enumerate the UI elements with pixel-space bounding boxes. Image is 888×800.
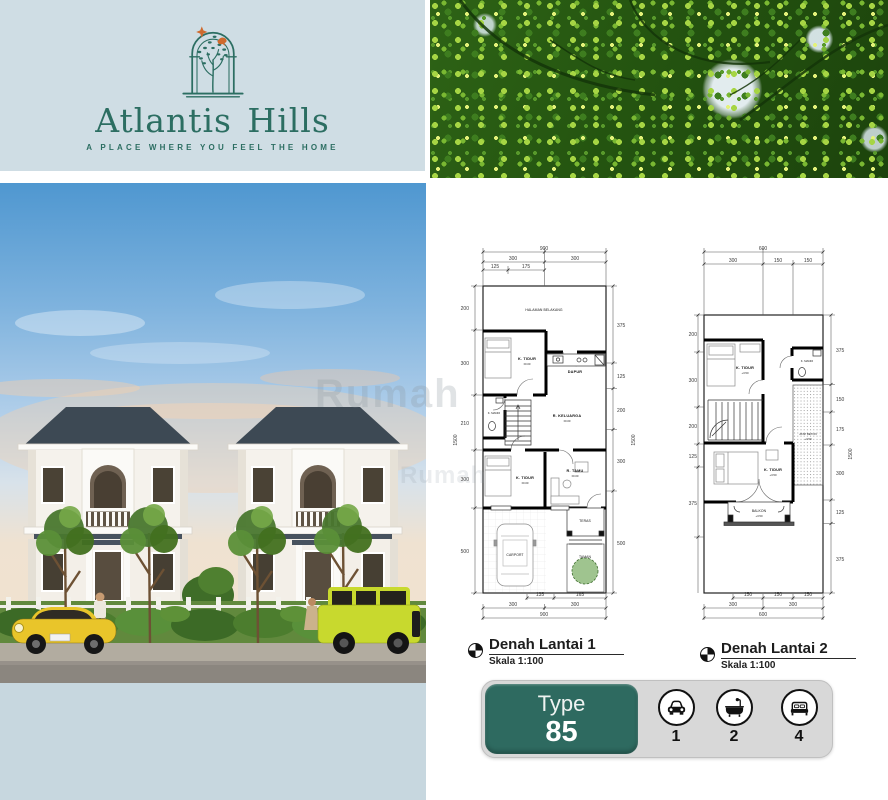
svg-text:200: 200 [617,408,626,414]
svg-text:300: 300 [571,602,580,608]
svg-text:1500: 1500 [453,434,459,445]
svg-text:+3.50: +3.50 [741,371,749,375]
svg-text:K. MANDI: K. MANDI [801,359,814,363]
svg-text:±0.00: ±0.00 [572,474,579,478]
floorplan-lantai-2: K. TIDUR +3.50 K. MANDI ATAP BETON +3.50… [688,240,888,660]
svg-text:300: 300 [789,602,798,608]
svg-text:600: 600 [759,612,768,618]
svg-text:300: 300 [571,256,580,262]
svg-text:K. TIDUR: K. TIDUR [764,468,782,472]
type-value: 85 [485,717,638,749]
svg-text:1500: 1500 [631,434,637,445]
svg-text:300: 300 [509,602,518,608]
svg-text:300: 300 [509,256,518,262]
svg-text:175: 175 [522,264,531,270]
svg-text:300: 300 [836,471,845,477]
bottom-color-strip [0,683,426,800]
compass-icon [468,643,483,658]
bathroom-count: 2 [709,728,759,746]
svg-text:300: 300 [461,361,470,367]
svg-text:K. TIDUR: K. TIDUR [516,476,534,480]
svg-text:375: 375 [836,348,845,354]
svg-text:±0.00: ±0.00 [564,419,571,423]
svg-text:300: 300 [689,378,698,384]
svg-text:300: 300 [729,258,738,264]
svg-text:150: 150 [836,397,845,403]
svg-text:ATAP BETON: ATAP BETON [799,432,816,436]
svg-text:375: 375 [617,323,626,329]
carport-count: 1 [651,728,701,746]
compass-icon [700,647,715,662]
svg-text:150: 150 [744,592,753,598]
bathtub-icon [716,689,753,726]
svg-text:TERAS: TERAS [579,519,591,523]
plan-title-lantai-2: Denah Lantai 2 Skala 1:100 [700,640,856,671]
svg-text:200: 200 [689,332,698,338]
arch-window-logo-icon [173,10,253,102]
type-tile: Type 85 [485,684,638,754]
svg-text:K. TIDUR: K. TIDUR [736,366,754,370]
svg-text:500: 500 [617,541,626,547]
flyer-page: Atlantis Hills A PLACE WHERE YOU FEEL TH… [0,0,888,800]
brand-tagline: A PLACE WHERE YOU FEEL THE HOME [0,143,425,152]
plan-title-lantai-1: Denah Lantai 1 Skala 1:100 [468,636,624,667]
svg-text:900: 900 [540,246,549,252]
type-label: Type [485,691,638,717]
svg-text:165: 165 [576,592,585,598]
logo-panel: Atlantis Hills A PLACE WHERE YOU FEEL TH… [0,0,425,171]
feature-bedroom: 4 [774,689,824,746]
svg-text:125: 125 [617,374,626,380]
svg-text:150: 150 [804,258,813,264]
bedroom-count: 4 [774,728,824,746]
svg-text:150: 150 [774,258,783,264]
svg-text:±0.00: ±0.00 [524,362,531,366]
bed-icon [781,689,818,726]
sparkle-icon [196,26,207,37]
svg-text:+3.50: +3.50 [804,437,812,441]
svg-text:BALKON: BALKON [752,509,767,513]
svg-text:300: 300 [461,477,470,483]
svg-text:CARPORT: CARPORT [506,553,523,557]
branches-overlay [430,0,888,178]
svg-text:200: 200 [689,424,698,430]
svg-text:125: 125 [836,510,845,516]
svg-text:150: 150 [804,592,813,598]
tree-canopy-photo [430,0,888,178]
svg-text:R. TAMU: R. TAMU [567,469,584,473]
plan-scale-text: Skala 1:100 [721,660,856,671]
svg-text:375: 375 [689,501,698,507]
svg-text:K. MANDI: K. MANDI [488,411,501,415]
svg-text:150: 150 [774,592,783,598]
plan-scale-text: Skala 1:100 [489,656,624,667]
svg-text:+3.50: +3.50 [769,473,777,477]
house-render-illustration [0,183,426,683]
brand-title: Atlantis Hills [0,101,425,140]
svg-text:125: 125 [689,454,698,460]
feature-bathroom: 2 [709,689,759,746]
floorplan-lantai-1: HALAMAN BELAKANG K. TIDUR ±0.00 DAPUR K.… [447,240,647,660]
svg-text:+3.50: +3.50 [755,514,763,518]
svg-text:600: 600 [759,246,768,252]
svg-text:135: 135 [536,592,545,598]
svg-text:500: 500 [461,549,470,555]
svg-text:900: 900 [540,612,549,618]
svg-text:1500: 1500 [848,448,854,459]
svg-text:375: 375 [836,557,845,563]
svg-text:R. KELUARGA: R. KELUARGA [553,414,582,418]
plan-title-text: Denah Lantai 2 [721,640,856,659]
svg-text:±0.00: ±0.00 [522,481,529,485]
svg-text:TAMAN: TAMAN [579,555,592,559]
svg-text:175: 175 [836,427,845,433]
svg-text:300: 300 [617,459,626,465]
type-badge: Type 85 1 [481,680,833,758]
svg-text:210: 210 [461,421,470,427]
svg-text:DAPUR: DAPUR [568,370,583,374]
svg-text:K. TIDUR: K. TIDUR [518,357,536,361]
car-icon [658,689,695,726]
svg-text:125: 125 [491,264,500,270]
svg-text:200: 200 [461,306,470,312]
svg-text:300: 300 [729,602,738,608]
feature-carport: 1 [651,689,701,746]
plan-title-text: Denah Lantai 1 [489,636,624,655]
svg-text:HALAMAN BELAKANG: HALAMAN BELAKANG [525,308,562,312]
